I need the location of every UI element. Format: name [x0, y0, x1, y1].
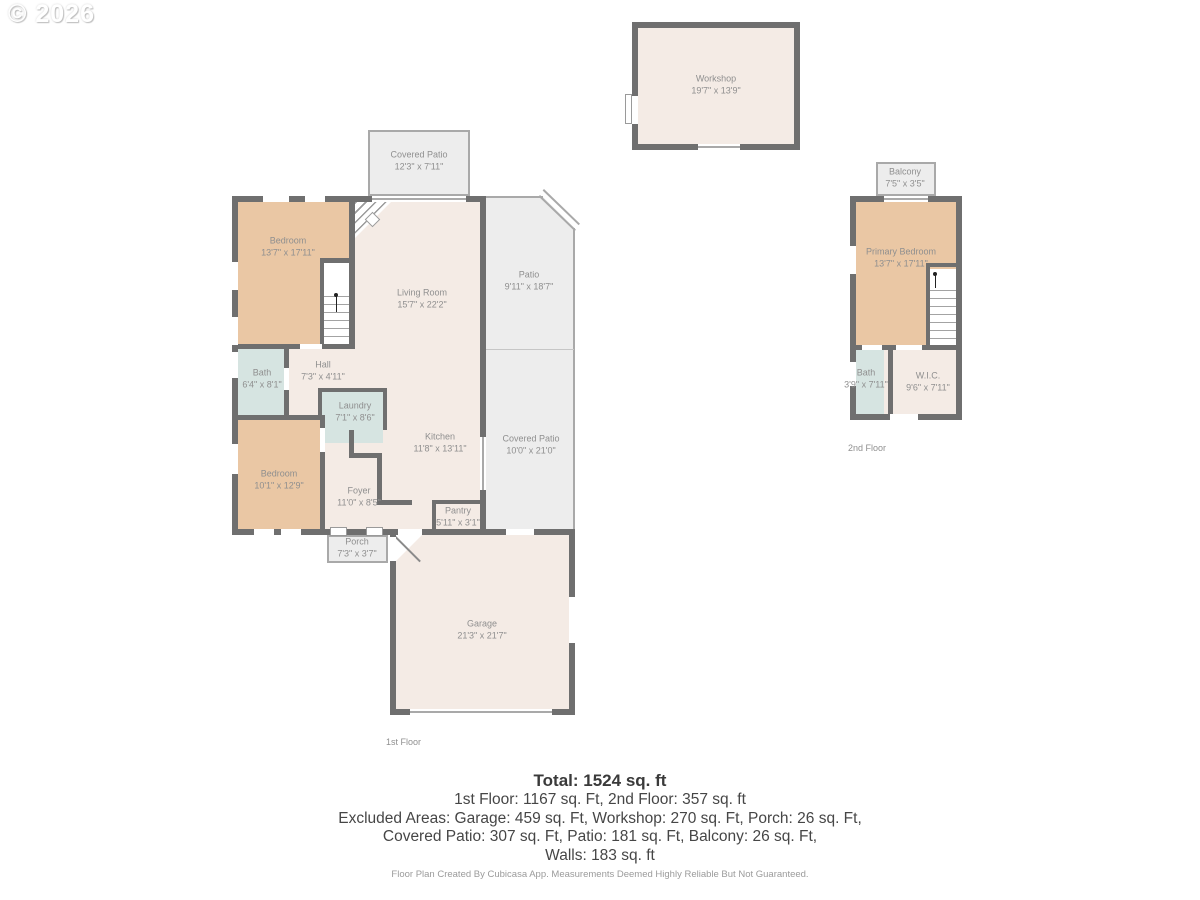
copyright-watermark: © 2026 [8, 0, 95, 29]
workshop-label: Workshop 19'7" x 13'9" [691, 73, 740, 96]
patio-edge [573, 228, 575, 350]
room-name: Living Room [397, 287, 447, 299]
room-name: Bedroom [254, 468, 303, 480]
wall-segment [632, 22, 800, 28]
room-name: Bedroom [261, 235, 315, 247]
door [300, 344, 322, 349]
disclaimer-footer: Floor Plan Created By Cubicasa App. Meas… [0, 869, 1200, 880]
window [850, 246, 856, 274]
staircase-steps [930, 290, 956, 345]
wall-segment [232, 344, 355, 349]
door [398, 529, 422, 535]
covered-patio-top-label: Covered Patio 12'3" x 7'11" [390, 149, 447, 172]
room-name: Foyer [337, 485, 381, 497]
room-dims: 7'3" x 3'7" [337, 548, 376, 560]
window [506, 529, 534, 535]
room-dims: 21'3" x 21'7" [457, 630, 506, 642]
covered-patio-edge [573, 350, 575, 529]
room-name: W.I.C. [906, 370, 950, 382]
wall-segment [377, 500, 412, 505]
room-name: Garage [457, 618, 506, 630]
total-area: Total: 1524 sq. ft [0, 770, 1200, 791]
window [698, 146, 740, 148]
door [320, 428, 325, 452]
wall-segment [926, 263, 930, 345]
wall-segment [383, 388, 387, 430]
room-dims: 5'11" x 3'1" [436, 517, 480, 529]
second-floor-label: 2nd Floor [848, 443, 886, 453]
first-floor-label: 1st Floor [386, 737, 421, 747]
door [390, 537, 396, 561]
room-dims: 3'9" x 7'11" [844, 379, 888, 391]
summary-line: Covered Patio: 307 sq. Ft, Patio: 181 sq… [0, 828, 1200, 847]
room-name: Covered Patio [390, 149, 447, 161]
pantry-label: Pantry 5'11" x 3'1" [436, 505, 480, 528]
window [890, 414, 918, 420]
room-name: Balcony [885, 166, 924, 178]
balcony-label: Balcony 7'5" x 3'5" [885, 166, 924, 189]
room-dims: 7'3" x 4'11" [301, 371, 345, 383]
wall-segment [318, 388, 322, 418]
room-name: Hall [301, 359, 345, 371]
wall-segment [318, 388, 387, 392]
kitchen-label: Kitchen 11'8" x 13'11" [413, 431, 466, 454]
wall-segment [632, 22, 638, 150]
door [366, 527, 383, 536]
room-dims: 13'7" x 17'11" [866, 258, 936, 270]
room-name: Pantry [436, 505, 480, 517]
bath2-label: Bath 3'9" x 7'11" [844, 367, 888, 390]
summary-line: 1st Floor: 1167 sq. Ft, 2nd Floor: 357 s… [0, 791, 1200, 810]
room-dims: 11'0" x 8'5" [337, 497, 381, 509]
room-dims: 15'7" x 22'2" [397, 299, 447, 311]
stair-arrow-line [935, 274, 936, 288]
laundry-label: Laundry 7'1" x 8'6" [335, 400, 374, 423]
bedroom-upper-room [237, 261, 320, 344]
door [625, 94, 632, 124]
room-name: Kitchen [413, 431, 466, 443]
room-dims: 7'1" x 8'6" [335, 412, 374, 424]
room-dims: 7'5" x 3'5" [885, 178, 924, 190]
room-dims: 19'7" x 13'9" [691, 85, 740, 97]
door [862, 345, 882, 350]
primary-bedroom-label: Primary Bedroom 13'7" x 17'11" [866, 246, 936, 269]
area-summary: Total: 1524 sq. ft 1st Floor: 1167 sq. F… [0, 770, 1200, 865]
garage-label: Garage 21'3" x 21'7" [457, 618, 506, 641]
room-dims: 6'4" x 8'1" [242, 379, 281, 391]
room-dims: 12'3" x 7'11" [390, 161, 447, 173]
wall-segment [320, 258, 324, 348]
porch-label: Porch 7'3" x 3'7" [337, 536, 376, 559]
window [232, 352, 238, 378]
summary-line: Walls: 183 sq. ft [0, 847, 1200, 866]
wall-segment [232, 415, 325, 420]
window [232, 317, 238, 345]
bedroom-lower-label: Bedroom 10'1" x 12'9" [254, 468, 303, 491]
hall-label: Hall 7'3" x 4'11" [301, 359, 345, 382]
bath-label: Bath 6'4" x 8'1" [242, 367, 281, 390]
door [330, 527, 347, 536]
window [232, 262, 238, 290]
room-dims: 10'0" x 21'0" [502, 445, 559, 457]
patio-edge [486, 196, 543, 198]
room-dims: 10'1" x 12'9" [254, 480, 303, 492]
room-name: Primary Bedroom [866, 246, 936, 258]
wall-segment [320, 258, 354, 263]
room-name: Bath [844, 367, 888, 379]
sliding-door [372, 198, 466, 200]
summary-line: Excluded Areas: Garage: 459 sq. Ft, Work… [0, 810, 1200, 829]
bedroom-upper-label: Bedroom 13'7" x 17'11" [261, 235, 315, 258]
room-dims: 11'8" x 13'11" [413, 443, 466, 455]
wic-label: W.I.C. 9'6" x 7'11" [906, 370, 950, 393]
wall-segment [888, 350, 893, 420]
stair-arrow-line [336, 296, 337, 312]
sliding-door [884, 198, 928, 200]
door [632, 96, 638, 124]
window [232, 444, 238, 474]
room-dims: 9'6" x 7'11" [906, 382, 950, 394]
room-name: Covered Patio [502, 433, 559, 445]
garage-door [410, 711, 552, 713]
room-name: Porch [337, 536, 376, 548]
window [263, 196, 289, 202]
window [254, 529, 274, 535]
door [569, 597, 575, 643]
patio-label: Patio 9'11" x 18'7" [505, 269, 554, 292]
wall-segment [432, 500, 486, 504]
sliding-door [482, 437, 484, 490]
room-dims: 13'7" x 17'11" [261, 247, 315, 259]
room-dims: 9'11" x 18'7" [505, 281, 554, 293]
wall-segment [794, 22, 800, 150]
door [284, 368, 289, 390]
floor-plan-canvas: © 2026 [0, 0, 1200, 900]
patio-divider-line [486, 349, 574, 350]
room-name: Workshop [691, 73, 740, 85]
foyer-label: Foyer 11'0" x 8'5" [337, 485, 381, 508]
room-name: Bath [242, 367, 281, 379]
wall-segment [349, 196, 355, 349]
window [305, 196, 325, 202]
room-name: Patio [505, 269, 554, 281]
window [281, 529, 301, 535]
covered-patio-right-label: Covered Patio 10'0" x 21'0" [502, 433, 559, 456]
room-name: Laundry [335, 400, 374, 412]
door [896, 345, 922, 350]
living-room-label: Living Room 15'7" x 22'2" [397, 287, 447, 310]
wall-segment [956, 196, 962, 420]
